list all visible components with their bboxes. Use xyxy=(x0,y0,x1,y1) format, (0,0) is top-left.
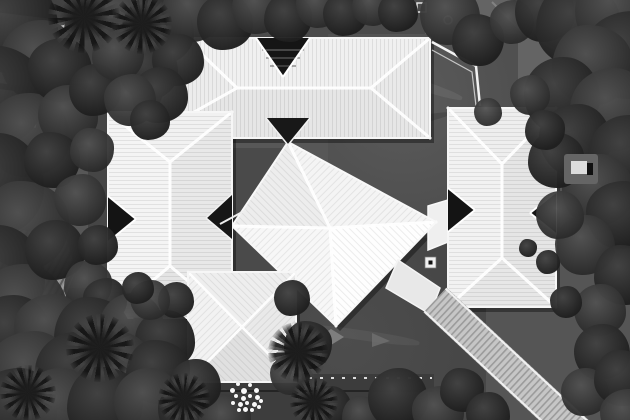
flower-dot xyxy=(243,407,248,412)
aerial-photo xyxy=(0,0,630,420)
flower-dot xyxy=(230,388,235,393)
flower-dot xyxy=(241,388,247,394)
flower-dot xyxy=(236,382,240,386)
flower-dot xyxy=(259,399,263,403)
flower-dot xyxy=(248,383,252,387)
flower-dot xyxy=(234,394,238,398)
flower-dot xyxy=(257,405,261,409)
flower-dot xyxy=(245,401,249,405)
flower-dot xyxy=(248,394,252,398)
flower-dot xyxy=(241,396,246,401)
flower-dot xyxy=(250,408,254,412)
flowering-tree xyxy=(228,376,272,420)
flower-dot xyxy=(237,408,241,412)
flower-dot xyxy=(254,388,259,393)
flower-dot xyxy=(252,402,257,407)
detail-layer xyxy=(0,0,630,420)
picnic-bench xyxy=(564,154,598,184)
flower-dot xyxy=(231,401,235,405)
flower-dot xyxy=(238,402,243,407)
